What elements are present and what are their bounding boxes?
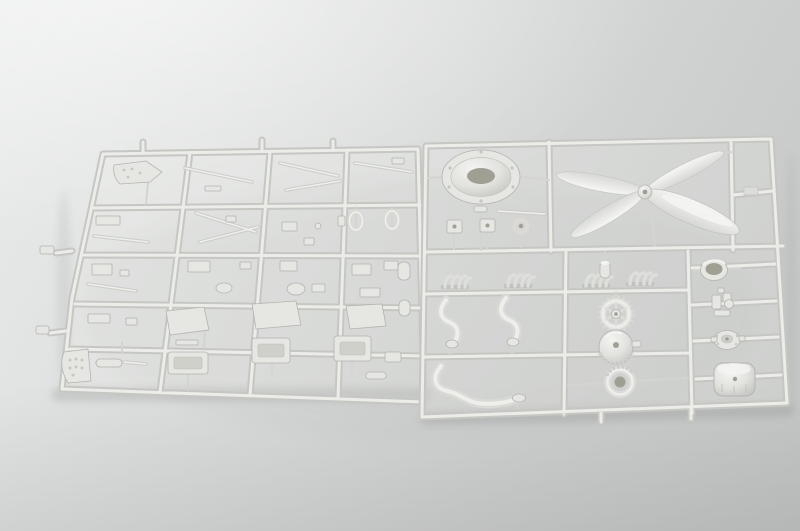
studio-background [0,0,800,531]
part-number-tag [744,187,758,195]
engine-drum-part [714,363,755,396]
left-sprue [36,140,424,402]
sprue-photo [0,0,800,531]
right-sprue [422,139,787,422]
